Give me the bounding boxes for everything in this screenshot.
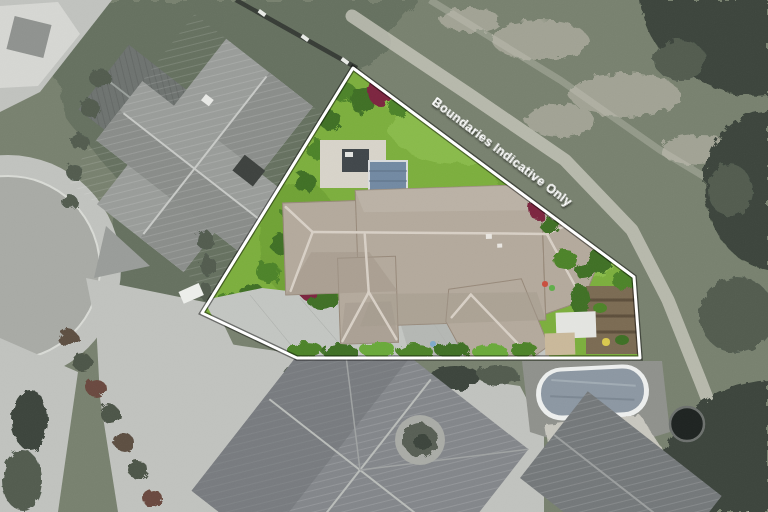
photo-grain	[0, 0, 768, 512]
aerial-photo-view: Boundaries Indicative Only	[0, 0, 768, 512]
aerial-photo: Boundaries Indicative Only	[0, 0, 768, 512]
